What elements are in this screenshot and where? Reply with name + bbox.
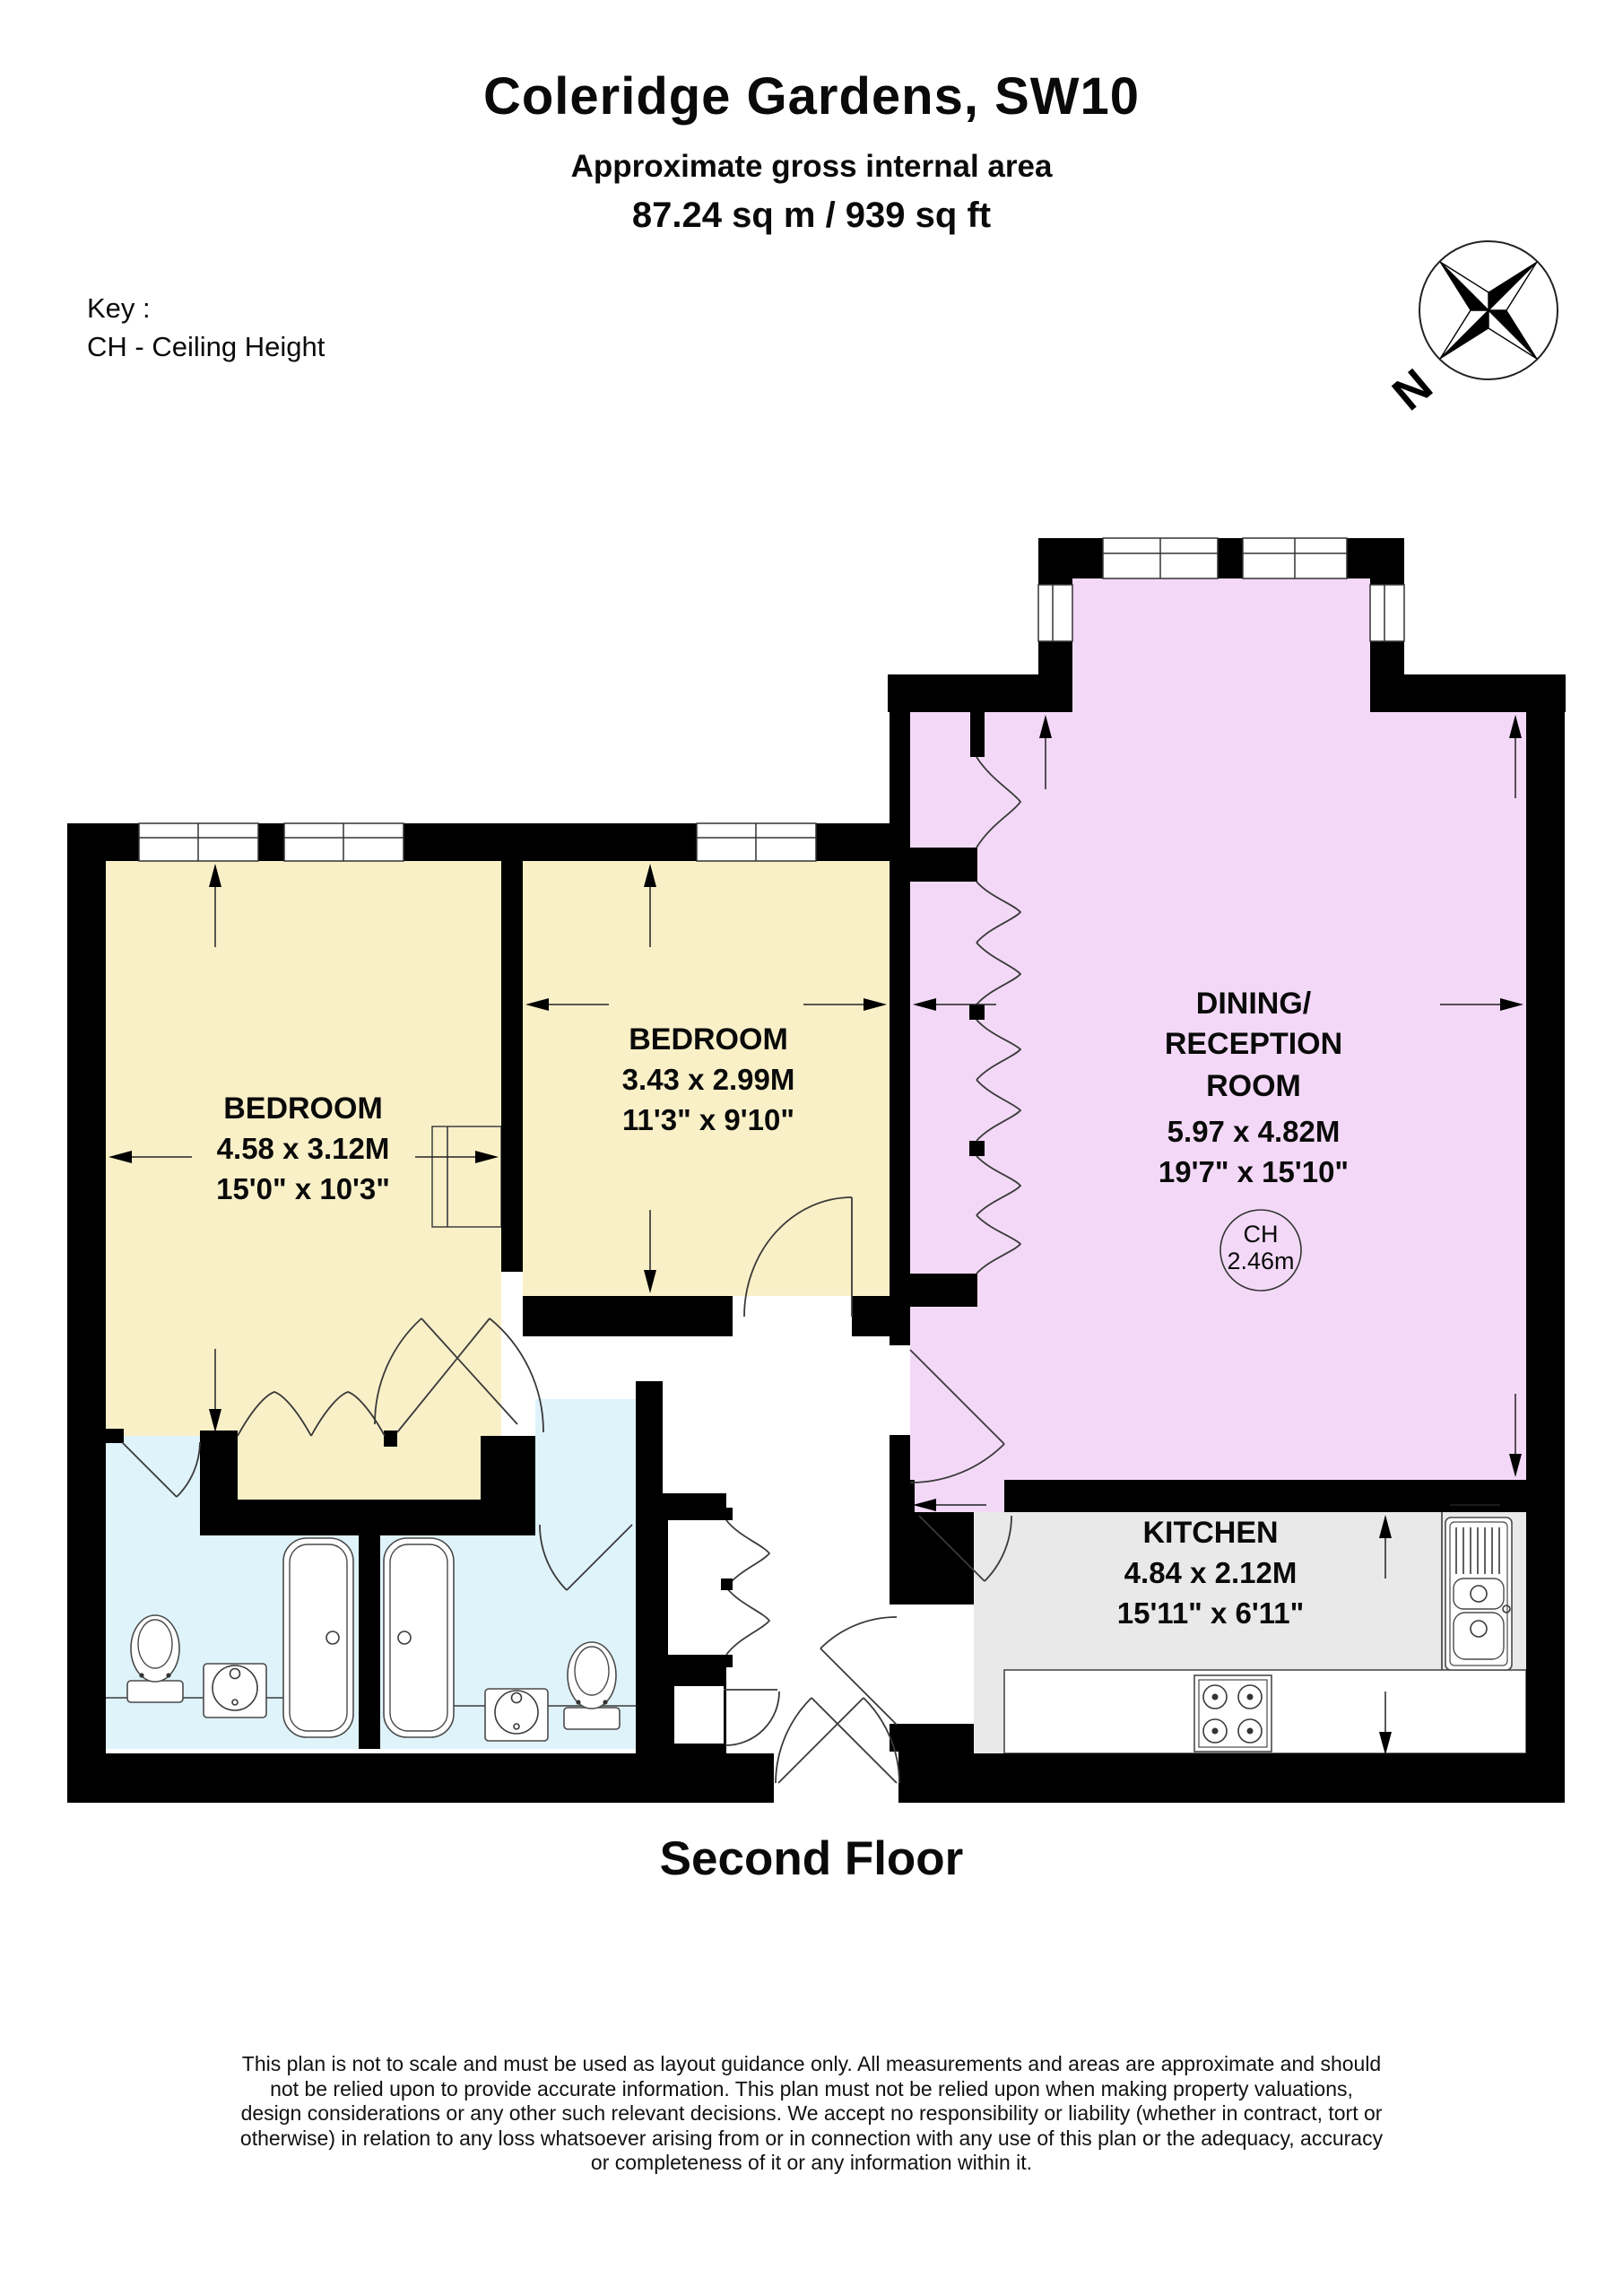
bathroom1-basin-icon	[204, 1664, 266, 1718]
bedroom2-label: BEDROOM	[629, 1022, 788, 1057]
front-door-opening	[774, 1752, 898, 1805]
disclaimer: This plan is not to scale and must be us…	[0, 2052, 1623, 2176]
disclaimer-line: This plan is not to scale and must be us…	[0, 2052, 1623, 2077]
bathroom2-bathtub-icon	[384, 1538, 454, 1737]
dining-metric: 5.97 x 4.82M	[1167, 1115, 1341, 1148]
bathroom1-toilet-icon	[127, 1615, 183, 1702]
compass-icon: N	[1383, 241, 1558, 421]
bedroom1-metric: 4.58 x 3.12M	[217, 1132, 390, 1165]
bedroom2-imperial: 11'3" x 9'10"	[622, 1103, 794, 1136]
compass-north-label: N	[1383, 360, 1442, 422]
disclaimer-line: not be relied upon to provide accurate i…	[0, 2077, 1623, 2102]
floor-name: Second Floor	[0, 1831, 1623, 1886]
floor-plan: N	[0, 0, 1623, 2296]
bathroom1-bathtub-icon	[283, 1538, 353, 1737]
bathroom2-toilet-icon	[564, 1642, 620, 1729]
disclaimer-line: design considerations or any other such …	[0, 2101, 1623, 2126]
dining-imperial: 19'7" x 15'10"	[1159, 1155, 1349, 1188]
dining-label-line1: DINING/	[1196, 987, 1312, 1021]
hall-kitchen-doorway	[910, 1605, 974, 1724]
dining-label-line2: RECEPTION	[1165, 1027, 1342, 1061]
bedroom1-label: BEDROOM	[223, 1091, 383, 1126]
hall-cupboard	[668, 1520, 726, 1655]
kitchen-label: KITCHEN	[1142, 1516, 1278, 1550]
hall-cupboard-bifold-doors	[720, 1508, 769, 1667]
bathroom2-lobby-floor	[535, 1399, 636, 1535]
ceiling-height-label: CH	[1244, 1221, 1279, 1248]
kitchen-hob-icon	[1194, 1675, 1271, 1752]
kitchen-imperial: 15'11" x 6'11"	[1117, 1596, 1305, 1630]
disclaimer-line: otherwise) in relation to any loss whats…	[0, 2126, 1623, 2152]
dining-label-line3: ROOM	[1206, 1069, 1301, 1103]
kitchen-sink-icon	[1445, 1518, 1512, 1670]
hall-kitchen-door	[820, 1617, 897, 1725]
bedroom2-metric: 3.43 x 2.99M	[622, 1063, 795, 1096]
bathroom1-lobby-floor	[106, 1436, 206, 1535]
kitchen-metric: 4.84 x 2.12M	[1124, 1556, 1298, 1589]
bedroom1-imperial: 15'0" x 10'3"	[216, 1172, 390, 1205]
disclaimer-line: or completeness of it or any information…	[0, 2151, 1623, 2176]
hall-store-door	[724, 1690, 779, 1745]
hall-store-nook	[674, 1686, 724, 1744]
bedroom1-closet-floor	[224, 1436, 481, 1500]
ceiling-height-value: 2.46m	[1227, 1248, 1294, 1274]
bathroom2-basin-icon	[485, 1689, 548, 1741]
